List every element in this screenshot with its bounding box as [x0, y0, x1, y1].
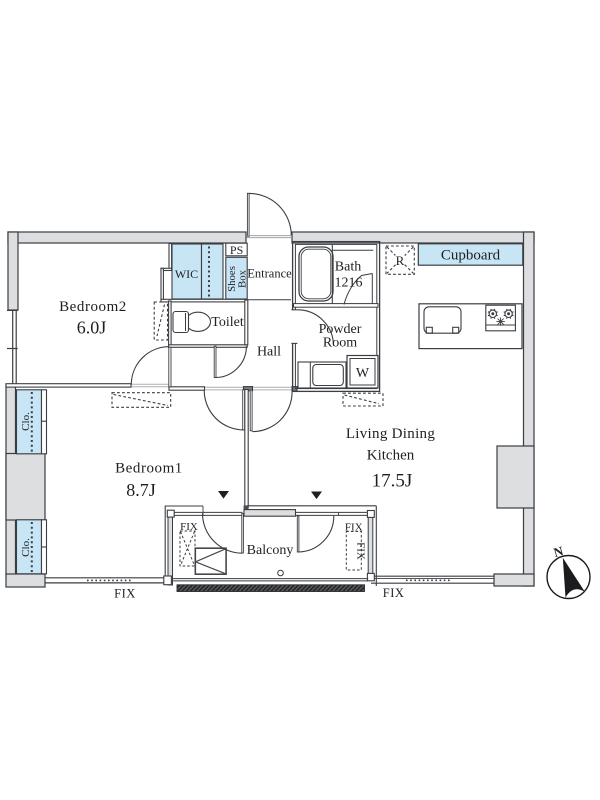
svg-text:Entrance: Entrance: [247, 267, 292, 281]
svg-text:Cupboard: Cupboard: [441, 248, 501, 264]
svg-text:Room: Room: [323, 336, 357, 351]
svg-text:N: N: [552, 543, 566, 560]
svg-text:Living Dining: Living Dining: [346, 426, 436, 442]
svg-text:Clo.: Clo.: [20, 412, 32, 431]
svg-text:WIC: WIC: [175, 267, 198, 281]
svg-text:R: R: [396, 253, 405, 268]
svg-text:W: W: [356, 366, 370, 381]
svg-text:FIX: FIX: [114, 587, 136, 601]
svg-text:FIX: FIX: [345, 522, 363, 534]
svg-text:Balcony: Balcony: [247, 543, 294, 558]
svg-text:Clo.: Clo.: [20, 538, 32, 557]
svg-text:Toilet: Toilet: [211, 315, 244, 330]
svg-text:8.7J: 8.7J: [126, 480, 156, 500]
svg-text:FIX: FIX: [354, 542, 366, 560]
svg-text:Hall: Hall: [257, 345, 281, 360]
svg-text:Kitchen: Kitchen: [367, 448, 415, 464]
svg-text:17.5J: 17.5J: [372, 471, 413, 492]
svg-text:Bedroom1: Bedroom1: [115, 461, 183, 477]
svg-text:PS: PS: [230, 243, 243, 257]
svg-text:FIX: FIX: [180, 521, 198, 533]
svg-text:Bedroom2: Bedroom2: [59, 299, 127, 315]
svg-text:6.0J: 6.0J: [77, 318, 107, 338]
svg-text:1216: 1216: [335, 276, 363, 291]
svg-text:Bath: Bath: [335, 260, 361, 275]
svg-text:FIX: FIX: [383, 586, 405, 600]
